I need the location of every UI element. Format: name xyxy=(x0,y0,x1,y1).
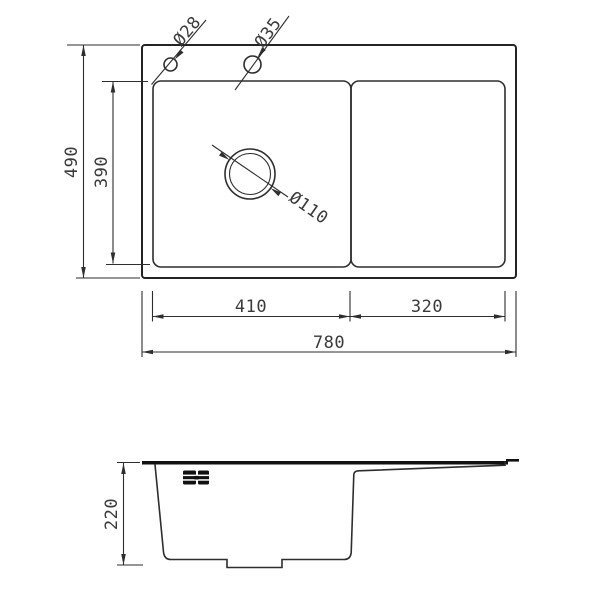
faucet-hole-28-circle xyxy=(164,58,177,71)
drain-circle-outer xyxy=(225,149,275,199)
dim-arrowhead-icon xyxy=(142,350,153,355)
dim-drainboard-width-320: 320 xyxy=(350,297,505,319)
dim-410-label: 410 xyxy=(235,297,267,317)
dim-arrowhead-icon xyxy=(111,253,116,264)
dim-height-220: 220 xyxy=(102,463,143,566)
dim-arrowhead-icon xyxy=(505,350,516,355)
dim-490-label: 490 xyxy=(62,146,82,178)
dim-arrowhead-icon xyxy=(153,314,164,319)
sink-technical-drawing-page: Ø28 Ø35 Ø110 490 xyxy=(0,0,600,600)
side-view: 220 xyxy=(102,459,519,568)
drain-circle-inner xyxy=(230,154,271,195)
rim-top-line xyxy=(142,461,508,465)
dim-arrowhead-icon xyxy=(339,314,350,319)
dim-arrowhead-icon xyxy=(350,314,361,319)
dim-overall-width-780: 780 xyxy=(142,333,516,354)
rim-right-step xyxy=(506,459,519,462)
outer-rim-rect xyxy=(142,45,516,278)
dim-220-label: 220 xyxy=(102,498,122,530)
drainboard-rect xyxy=(351,81,505,267)
dim-320-label: 320 xyxy=(411,297,443,317)
leader-faucet-hole-35: Ø35 xyxy=(235,14,289,90)
faucet-hole-35-label: Ø35 xyxy=(251,14,286,52)
dim-arrowhead-icon xyxy=(111,82,116,93)
bowl-rect xyxy=(153,81,351,267)
faucet-holes-icon xyxy=(183,471,209,485)
dim-390-label: 390 xyxy=(92,156,112,188)
dim-780-label: 780 xyxy=(313,333,345,353)
dim-arrowhead-icon xyxy=(121,554,126,565)
dim-arrowhead-icon xyxy=(81,267,86,278)
top-view: Ø28 Ø35 Ø110 490 xyxy=(62,13,516,357)
dim-arrowhead-icon xyxy=(121,463,126,474)
dim-arrowhead-icon xyxy=(494,314,505,319)
dim-bowl-width-410: 410 xyxy=(153,297,351,319)
drain-diameter-label: Ø110 xyxy=(285,188,332,229)
leader-faucet-hole-28: Ø28 xyxy=(152,13,207,85)
sink-technical-drawing: Ø28 Ø35 Ø110 490 xyxy=(0,0,600,600)
dim-arrowhead-icon xyxy=(81,45,86,56)
